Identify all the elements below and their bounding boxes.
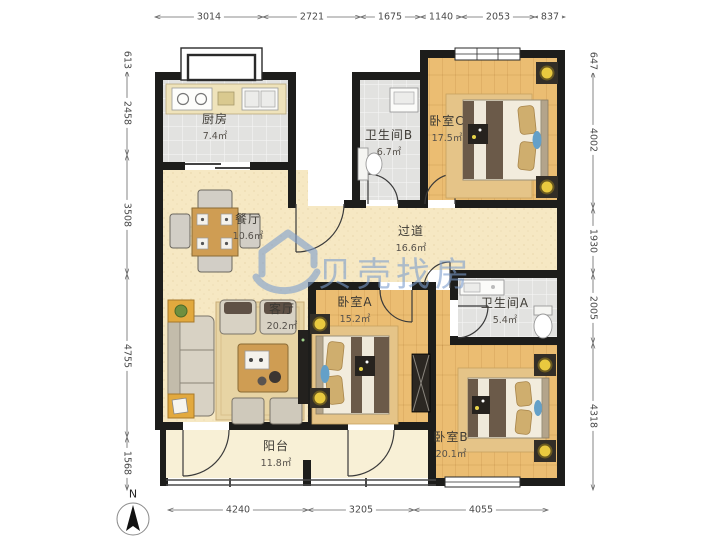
north-label: N [129,488,137,501]
dim-top-6: 837 [538,12,562,23]
kitchen-sliding-door [185,164,250,168]
wardrobe-bedroom-a [412,354,430,412]
dim-left-2: 2458 [122,98,133,128]
dim-right-5: 4318 [588,401,599,431]
dim-left-1: 613 [122,48,133,72]
bedroom-b-window [445,477,520,487]
dim-right-2: 4002 [588,125,599,155]
floorplan-screenshot: 厨房7.4㎡ 餐厅10.6㎡ 卫生间B6.7㎡ 卧室C17.5㎡ 过道16.6㎡… [0,0,720,540]
balcony-glazing [166,478,436,487]
beike-watermark: 贝壳找房 [318,247,474,296]
dim-top-2: 2721 [297,12,327,23]
dim-bottom-1: 4240 [223,505,253,516]
bedroom-c-window [455,48,520,60]
dim-right-1: 647 [588,49,599,73]
bay-window [181,48,262,80]
bedroom-b-furniture [458,354,556,462]
dim-top-5: 2053 [483,12,513,23]
dim-left-4: 4755 [122,341,133,371]
dim-left-3: 3508 [122,200,133,230]
dim-right-3: 1930 [588,226,599,256]
dim-bottom-3: 4055 [466,505,496,516]
kitchen-counter [166,84,286,114]
north-compass-icon [117,503,149,535]
living-room-furniture [168,300,308,424]
dim-bottom-2: 3205 [346,505,376,516]
dim-top-3: 1675 [375,12,405,23]
dim-right-4: 2005 [588,293,599,323]
dim-top-4: 1140 [426,12,456,23]
dim-left-5: 1568 [122,448,133,478]
dim-top-1: 3014 [194,12,224,23]
